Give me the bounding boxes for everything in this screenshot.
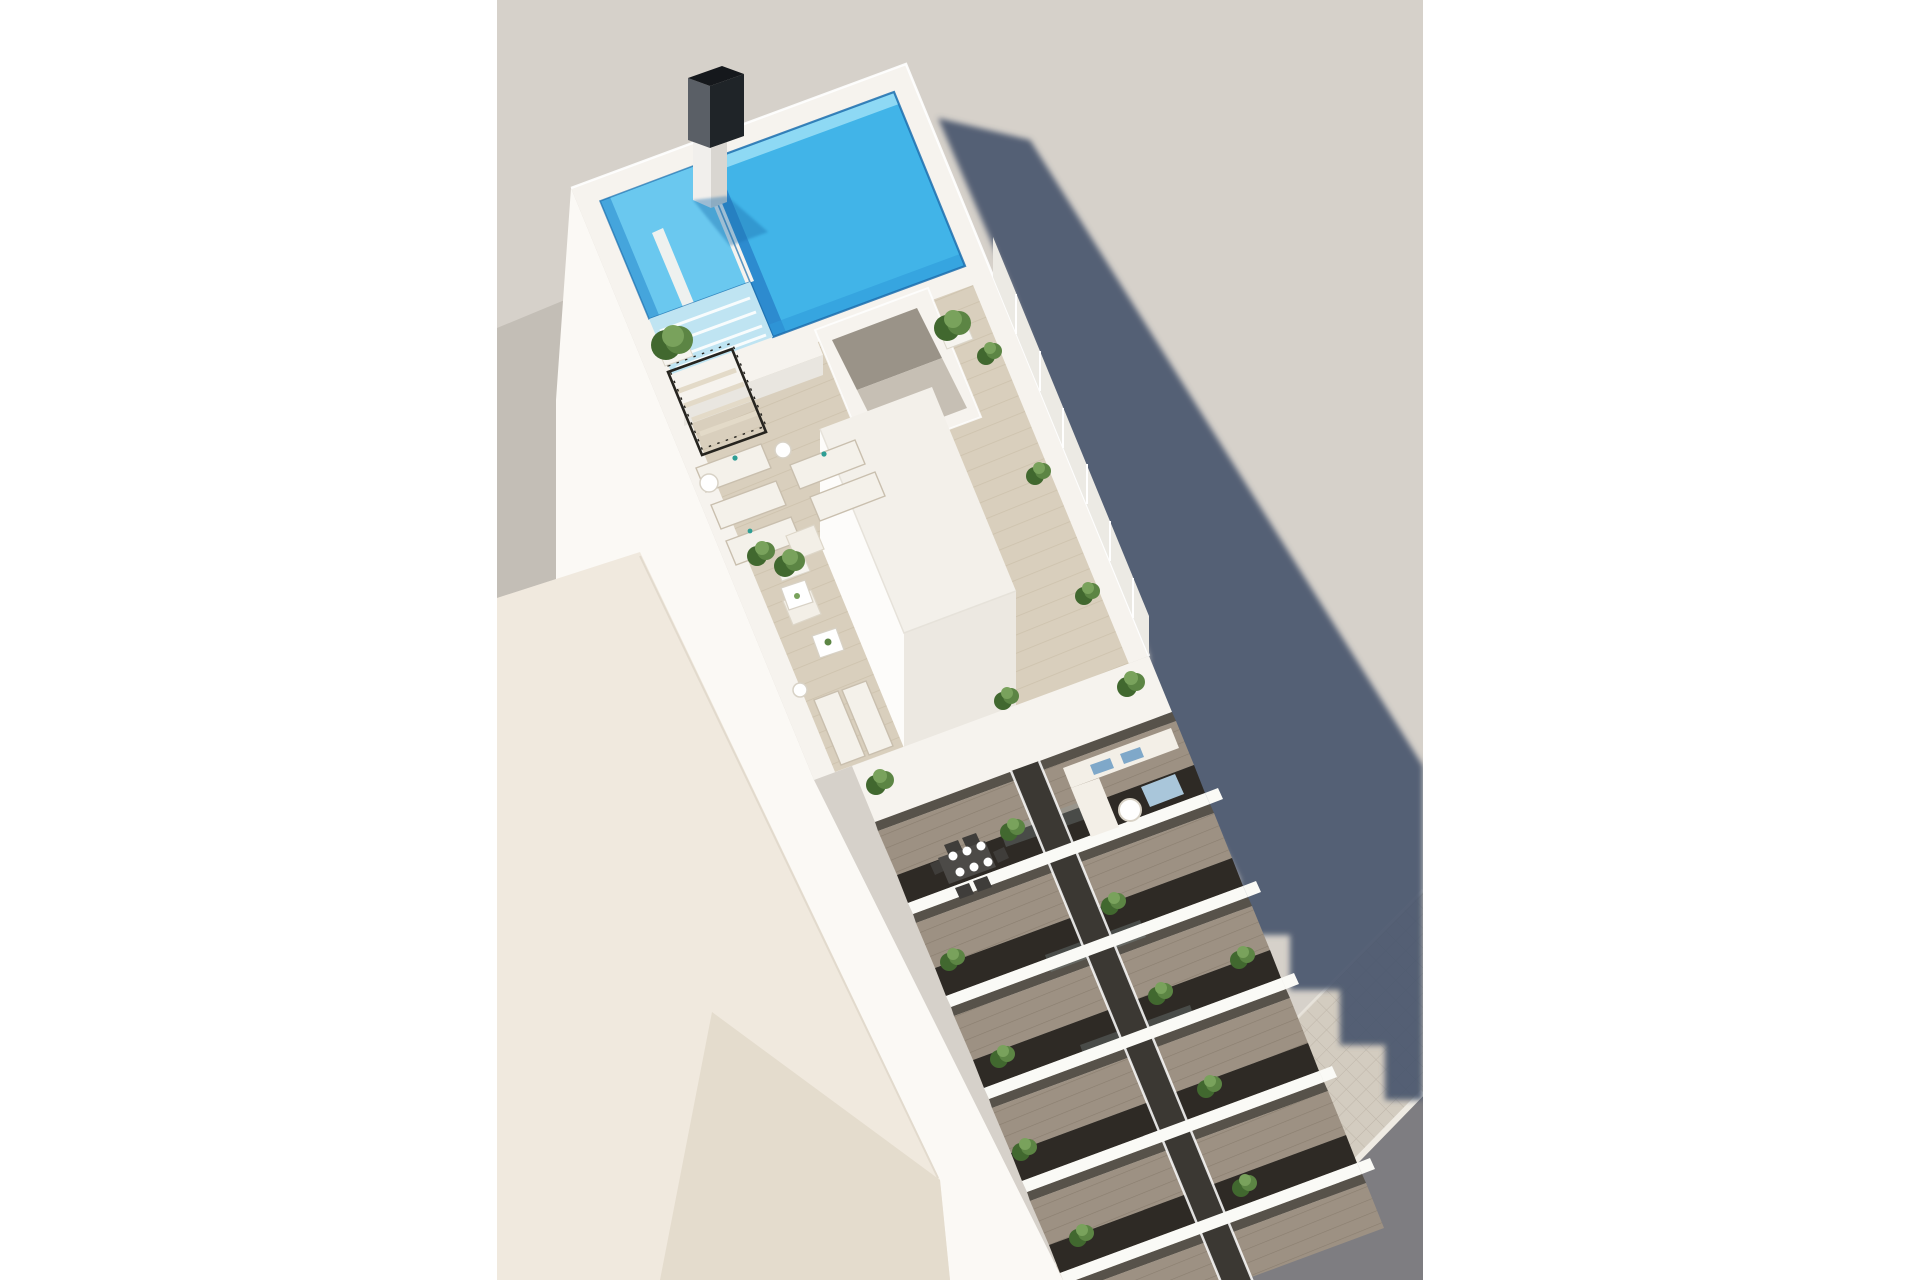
- architectural-render: [0, 0, 1920, 1280]
- table-plant-decor: [794, 593, 800, 599]
- chimney-west-face: [688, 78, 710, 148]
- round-table: [1119, 799, 1141, 821]
- table-plant-decor: [825, 639, 832, 646]
- chimney-column: [693, 140, 711, 208]
- chimney-front-face: [710, 74, 744, 148]
- render-canvas: [0, 0, 1920, 1280]
